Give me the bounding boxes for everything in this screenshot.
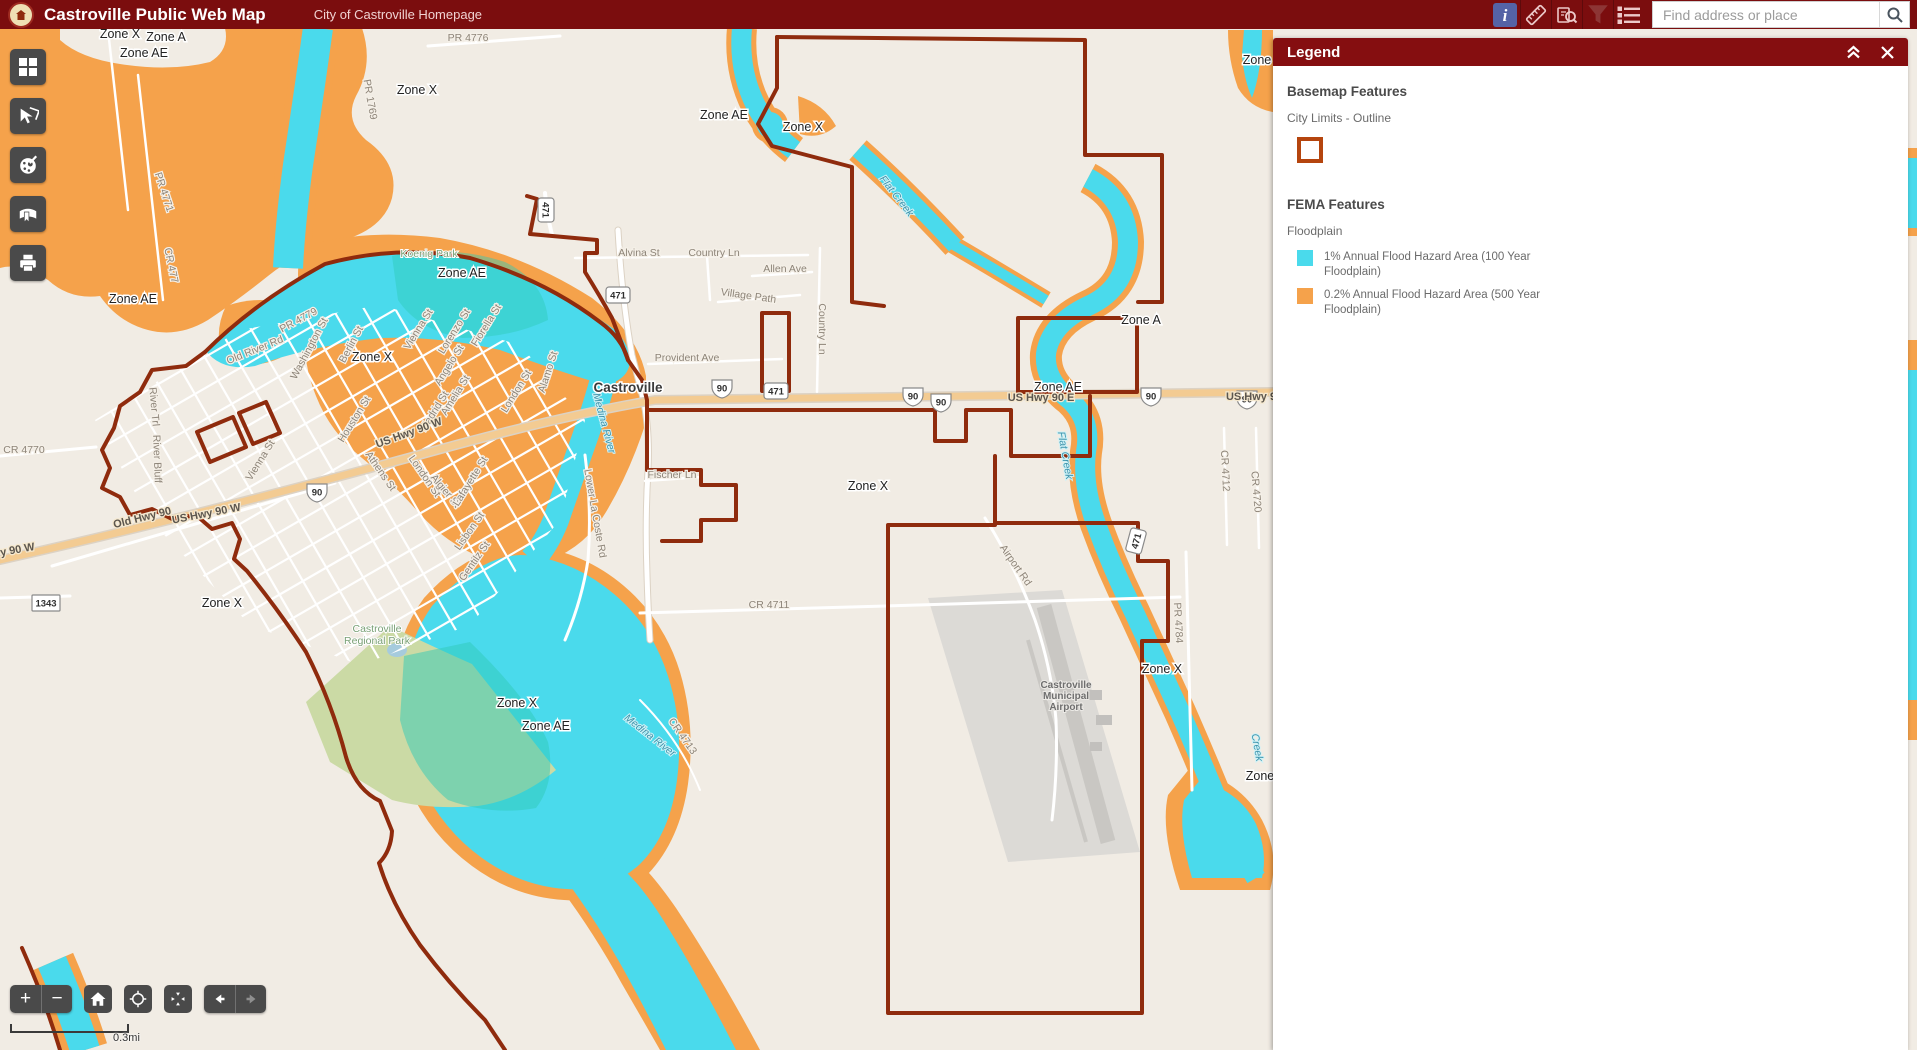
svg-text:471: 471: [540, 202, 551, 219]
svg-text:90: 90: [1146, 392, 1157, 403]
basemap-gallery-icon[interactable]: [10, 49, 46, 85]
layer-list-icon[interactable]: [1614, 0, 1644, 29]
map-label: Zone X: [1142, 662, 1183, 676]
map-label: Provident Ave: [655, 352, 720, 364]
extent-icon[interactable]: [164, 985, 192, 1013]
map-label: Zone AE: [522, 719, 570, 733]
map-label: Zone AE: [438, 266, 486, 280]
close-icon[interactable]: [1881, 46, 1894, 59]
map-label: Country Ln: [816, 303, 828, 355]
legend-body: Basemap Features City Limits - Outline F…: [1273, 66, 1908, 340]
app-title: Castroville Public Web Map: [44, 5, 266, 25]
map-label: Zone X: [397, 83, 438, 97]
route-shield: 471: [538, 198, 554, 222]
map-label: Country Ln: [688, 247, 740, 259]
widget-toolbar: [10, 49, 46, 281]
app-header: Castroville Public Web Map City of Castr…: [0, 0, 1917, 29]
map-label: CR 4770: [3, 444, 45, 456]
map-label: Municipal: [1043, 691, 1089, 702]
map-label: Koenig Park: [400, 248, 458, 260]
map-label: Zone X: [497, 696, 538, 710]
collapse-icon[interactable]: [1846, 45, 1861, 59]
query-icon[interactable]: [1552, 0, 1582, 29]
map-label: Regional Park: [344, 635, 411, 647]
legend-title: Legend: [1287, 44, 1340, 61]
city-limits-swatch: [1297, 137, 1323, 163]
search-input[interactable]: [1653, 3, 1879, 26]
info-icon[interactable]: i: [1490, 0, 1520, 29]
floodplain-layer-name: Floodplain: [1287, 224, 1894, 238]
map-label: PR 4784: [1171, 602, 1185, 644]
zoom-in-button[interactable]: +: [10, 985, 41, 1013]
map-label: Zone AE: [700, 108, 748, 122]
locate-button[interactable]: [124, 985, 152, 1013]
map-navigation-controls: + −: [10, 985, 266, 1013]
legend-row-100yr: 1% Annual Flood Hazard Area (100 Year Fl…: [1297, 250, 1894, 280]
svg-text:90: 90: [936, 398, 947, 409]
map-label: Zone X: [783, 120, 824, 134]
flood-500yr-label: 0.2% Annual Flood Hazard Area (500 Year …: [1324, 288, 1556, 318]
select-icon[interactable]: [10, 98, 46, 134]
svg-text:90: 90: [717, 384, 728, 395]
search-box: [1652, 1, 1910, 28]
home-button[interactable]: [84, 985, 112, 1013]
flood-100yr-swatch: [1297, 250, 1313, 266]
flood-100yr-label: 1% Annual Flood Hazard Area (100 Year Fl…: [1324, 250, 1556, 280]
scalebar: 0.3mi: [10, 1024, 129, 1033]
map-label: Castroville: [352, 623, 401, 635]
svg-text:90: 90: [908, 392, 919, 403]
map-label: Zone: [1243, 53, 1272, 67]
map-label: CR 4712: [1218, 450, 1232, 492]
scalebar-label: 0.3mi: [113, 1032, 140, 1044]
next-extent-button[interactable]: [235, 985, 266, 1013]
legend-row-500yr: 0.2% Annual Flood Hazard Area (500 Year …: [1297, 288, 1894, 318]
map-label: Zone X: [100, 27, 141, 41]
map-label: Alvina St: [618, 247, 660, 259]
map-label: Zone X: [848, 479, 889, 493]
svg-text:1343: 1343: [35, 599, 56, 610]
city-limits-layer-name: City Limits - Outline: [1287, 111, 1894, 125]
svg-text:90: 90: [312, 488, 323, 499]
print-icon[interactable]: [10, 245, 46, 281]
basemap-features-heading: Basemap Features: [1287, 84, 1894, 99]
map-label: Fischer Ln: [647, 469, 696, 481]
fema-features-heading: FEMA Features: [1287, 197, 1894, 212]
route-shield: 1343: [32, 595, 60, 611]
route-shield: 471: [606, 287, 630, 303]
previous-extent-button[interactable]: [204, 985, 235, 1013]
map-label: Allen Ave: [763, 263, 807, 275]
draw-icon[interactable]: [10, 147, 46, 183]
city-seal-logo: [8, 2, 34, 28]
route-shield: 471: [764, 383, 788, 399]
svg-text:471: 471: [610, 291, 627, 302]
homepage-link[interactable]: City of Castroville Homepage: [314, 7, 482, 22]
map-label: Zone X: [352, 350, 393, 364]
bookmark-icon[interactable]: [10, 196, 46, 232]
measure-icon[interactable]: [1521, 0, 1551, 29]
map-label: US Hwy 9: [1226, 391, 1276, 403]
flood-500yr-swatch: [1297, 288, 1313, 304]
search-icon[interactable]: [1879, 2, 1909, 27]
map-label: PR 4776: [448, 32, 489, 44]
map-label: CR 4711: [749, 599, 790, 611]
filter-icon[interactable]: [1583, 0, 1613, 29]
svg-text:i: i: [1503, 6, 1508, 25]
legend-header: Legend: [1273, 38, 1908, 66]
svg-text:471: 471: [768, 387, 785, 398]
map-label: Zone AE: [120, 46, 168, 60]
map-label: Zone X: [202, 596, 243, 610]
map-label: Zone AE: [109, 292, 157, 306]
legend-panel: Legend Basemap Features City Limits - Ou…: [1273, 38, 1908, 1050]
map-label: Zone A: [146, 30, 186, 44]
map-label: Zone: [1246, 769, 1275, 783]
map-label: Airport: [1049, 702, 1083, 713]
map-label: Castroville: [593, 380, 663, 395]
map-label: River Bluff: [150, 435, 164, 484]
zoom-out-button[interactable]: −: [41, 985, 72, 1013]
map-label: Zone A: [1121, 313, 1161, 327]
map-label: Castroville: [1040, 680, 1092, 691]
map-label: US Hwy 90 E: [1008, 392, 1075, 404]
